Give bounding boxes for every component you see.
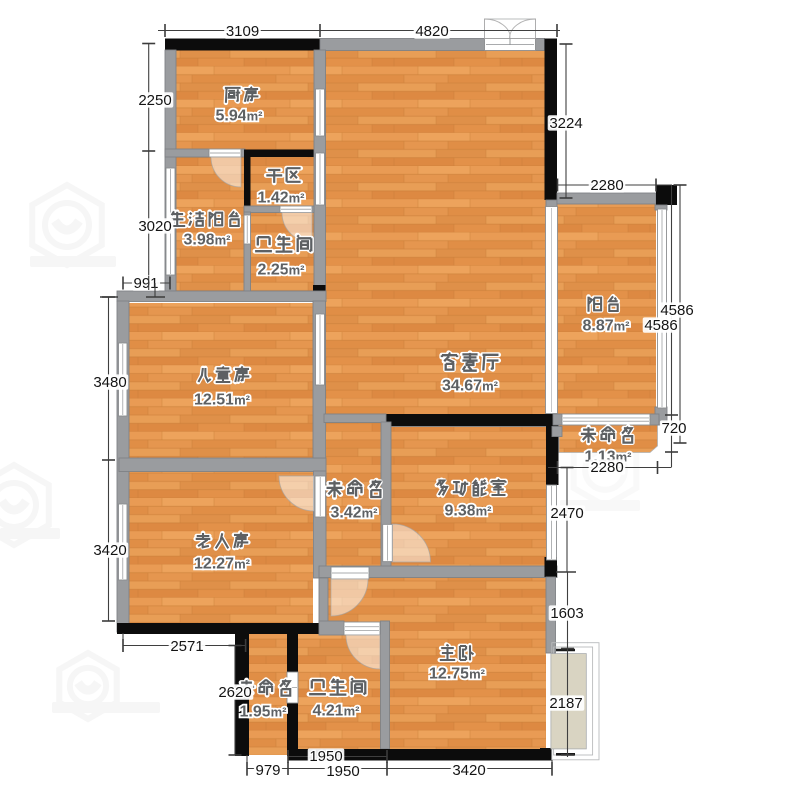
svg-text:1.42m²: 1.42m² [257, 189, 305, 206]
svg-text:2280: 2280 [590, 177, 623, 194]
svg-text:5.94m²: 5.94m² [215, 107, 263, 124]
svg-text:720: 720 [661, 420, 686, 437]
svg-text:2280: 2280 [590, 459, 623, 476]
svg-text:3480: 3480 [93, 374, 126, 391]
svg-text:3224: 3224 [549, 115, 582, 132]
svg-text:4820: 4820 [415, 23, 448, 40]
svg-text:1603: 1603 [550, 605, 583, 622]
svg-text:12.27m²: 12.27m² [194, 555, 251, 572]
svg-text:8.87m²: 8.87m² [582, 317, 630, 334]
svg-text:1.95m²: 1.95m² [239, 703, 287, 720]
svg-text:12.51m²: 12.51m² [194, 391, 251, 408]
svg-text:2571: 2571 [170, 638, 203, 655]
svg-text:4586: 4586 [644, 317, 677, 334]
svg-text:2187: 2187 [549, 695, 582, 712]
svg-text:979: 979 [255, 762, 280, 779]
svg-text:1950: 1950 [326, 763, 359, 780]
svg-text:3.98m²: 3.98m² [183, 231, 231, 248]
svg-text:12.75m²: 12.75m² [429, 665, 486, 682]
svg-text:9.38m²: 9.38m² [444, 502, 492, 519]
svg-text:4.21m²: 4.21m² [312, 702, 360, 719]
svg-text:2250: 2250 [138, 92, 171, 109]
svg-text:2620: 2620 [218, 684, 251, 701]
svg-text:2470: 2470 [550, 505, 583, 522]
svg-text:3420: 3420 [452, 762, 485, 779]
svg-text:34.67m²: 34.67m² [442, 377, 499, 394]
svg-text:3020: 3020 [138, 218, 171, 235]
svg-text:3.42m²: 3.42m² [330, 504, 378, 521]
svg-text:3109: 3109 [226, 23, 259, 40]
svg-text:3420: 3420 [93, 542, 126, 559]
svg-text:2.25m²: 2.25m² [257, 261, 305, 278]
